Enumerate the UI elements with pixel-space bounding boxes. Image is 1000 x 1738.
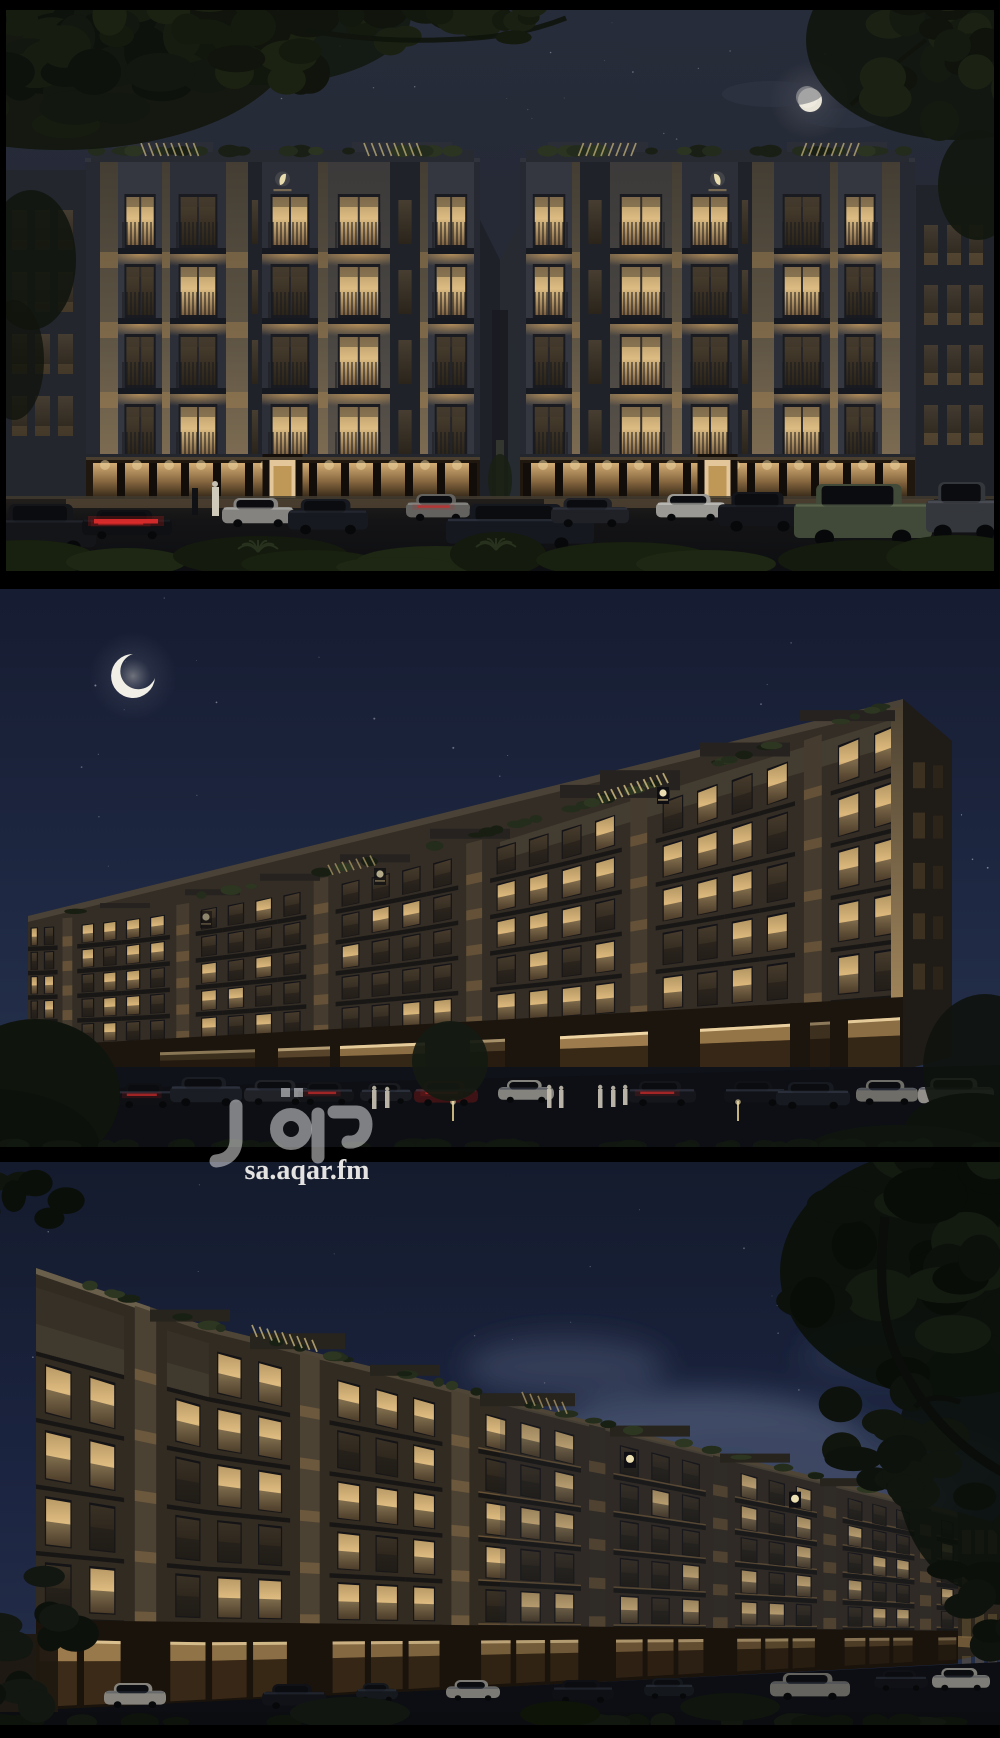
svg-text:sa.aqar.fm: sa.aqar.fm [245,1155,370,1186]
